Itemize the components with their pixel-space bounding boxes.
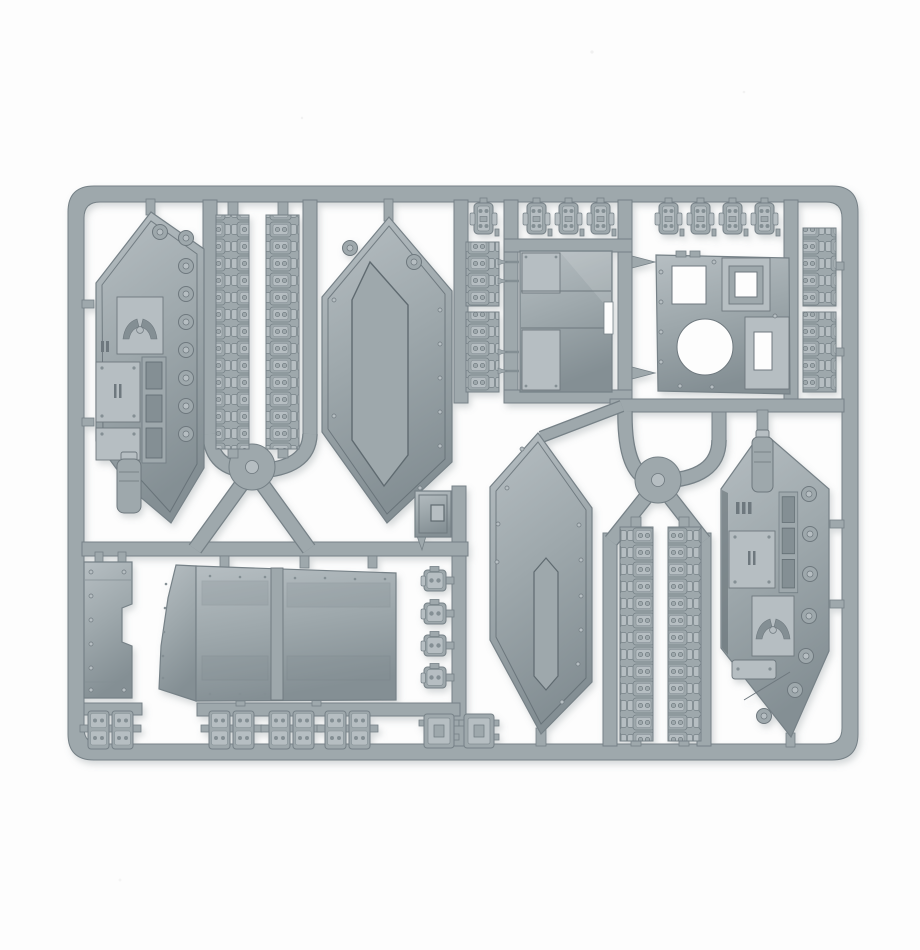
track-pad-column <box>421 567 454 689</box>
ramp-centre-rib <box>271 568 283 700</box>
turret-ring-hole <box>677 319 733 375</box>
track-run-long-1 <box>216 215 249 449</box>
runner-v1 <box>203 200 217 438</box>
assault-ramp-door <box>159 565 396 701</box>
runner-hub-left-pin <box>246 461 259 474</box>
runner-v4 <box>618 200 632 415</box>
eagle-door <box>752 596 794 656</box>
track-run-long-2 <box>266 215 299 449</box>
runner-v3 <box>504 200 518 403</box>
photo-background: Grey injection-moulded plastic model kit… <box>0 0 920 950</box>
recessed-armour-plate <box>352 262 408 486</box>
sprue-photo: Grey injection-moulded plastic model kit… <box>0 0 920 950</box>
track-segment-short-right-1 <box>803 228 836 306</box>
exhaust-cylinder <box>752 430 773 492</box>
track-segment-short-left-2 <box>466 312 499 392</box>
runner-hatch-bay-bottom <box>504 239 632 252</box>
sprue <box>68 186 858 760</box>
runner-v2 <box>303 200 317 438</box>
right-hull-interior-panel <box>721 430 829 737</box>
exhaust-cylinder <box>117 452 141 513</box>
track-segment-short-right-2 <box>803 312 836 392</box>
track-link-pairs <box>80 711 378 749</box>
left-hull-interior-panel <box>96 212 204 523</box>
raised-port-frame <box>745 317 789 389</box>
runner-hub-right-pin <box>652 474 665 487</box>
small-access-door <box>415 491 451 537</box>
smooth-hex-side-panel <box>490 433 592 734</box>
casemate-top-plate <box>656 251 790 394</box>
runner-mid-left <box>82 542 468 556</box>
marking-III <box>736 502 752 514</box>
hull-exterior-side-panel <box>322 217 452 523</box>
track-segment-short-left-1 <box>466 242 499 306</box>
eagle-door <box>117 297 163 354</box>
narrow-side-skirt <box>84 562 132 698</box>
runner-v7 <box>603 533 617 746</box>
track-run-long-3 <box>620 527 653 741</box>
recessed-plate <box>534 558 558 690</box>
raised-hatch-frame <box>722 258 770 311</box>
hatch-opening-square <box>672 266 706 304</box>
runner-right-upper <box>610 399 844 412</box>
track-run-long-4 <box>668 527 701 741</box>
